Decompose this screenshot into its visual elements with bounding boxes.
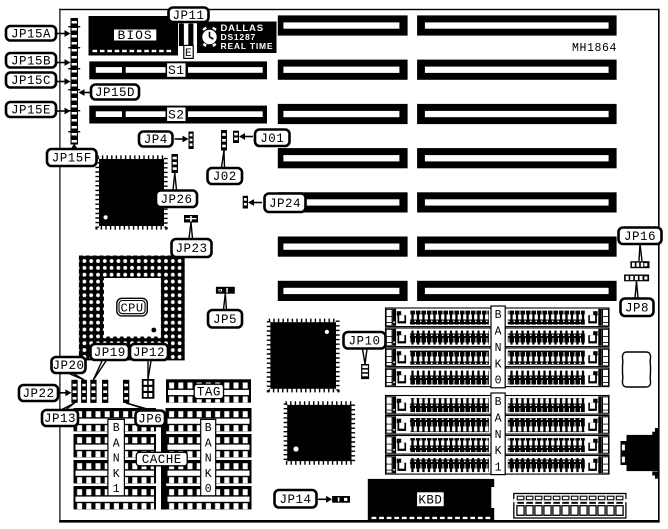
svg-text:S2: S2 — [168, 107, 185, 122]
svg-text:K: K — [495, 358, 502, 371]
svg-text:KBD: KBD — [418, 493, 442, 507]
svg-text:E: E — [185, 48, 192, 60]
svg-text:K: K — [495, 445, 502, 458]
svg-text:JP26: JP26 — [160, 193, 192, 207]
svg-text:J01: J01 — [260, 132, 284, 146]
svg-text:TAG: TAG — [197, 385, 221, 399]
svg-text:N: N — [205, 453, 212, 466]
svg-text:JP19: JP19 — [94, 346, 126, 360]
svg-text:B: B — [495, 396, 502, 409]
svg-text:JP15B: JP15B — [11, 54, 51, 68]
svg-text:A: A — [495, 326, 502, 339]
svg-text:JP6: JP6 — [138, 412, 162, 426]
svg-text:A: A — [205, 437, 212, 450]
svg-text:0: 0 — [495, 375, 502, 388]
svg-text:JP8: JP8 — [625, 301, 649, 315]
svg-text:1: 1 — [495, 461, 502, 474]
svg-text:B: B — [205, 422, 212, 435]
svg-text:B: B — [113, 422, 120, 435]
svg-text:JP15E: JP15E — [11, 104, 51, 118]
svg-text:JP4: JP4 — [144, 133, 168, 147]
svg-text:0: 0 — [205, 483, 212, 496]
svg-text:JP13: JP13 — [44, 412, 76, 426]
svg-text:JP12: JP12 — [133, 346, 165, 360]
svg-text:JP15D: JP15D — [95, 86, 135, 100]
svg-text:CACHE: CACHE — [142, 453, 182, 467]
svg-text:A: A — [113, 437, 120, 450]
svg-text:MH1864: MH1864 — [572, 42, 617, 55]
svg-text:J02: J02 — [213, 170, 237, 184]
svg-text:JP10: JP10 — [348, 334, 380, 348]
svg-text:JP11: JP11 — [172, 9, 204, 23]
svg-text:S1: S1 — [168, 63, 185, 78]
svg-text:JP5: JP5 — [213, 313, 237, 327]
svg-text:JP16: JP16 — [624, 230, 656, 244]
svg-text:JP15F: JP15F — [52, 152, 92, 166]
svg-text:JP20: JP20 — [52, 359, 84, 373]
svg-text:1: 1 — [113, 483, 120, 496]
svg-text:BIOS: BIOS — [118, 28, 153, 43]
svg-text:K: K — [113, 468, 120, 481]
svg-text:JP22: JP22 — [22, 387, 54, 401]
svg-text:JP14: JP14 — [279, 493, 311, 507]
svg-text:JP23: JP23 — [175, 242, 207, 256]
svg-text:A: A — [495, 413, 502, 426]
svg-text:K: K — [205, 468, 212, 481]
svg-text:N: N — [495, 429, 502, 442]
svg-text:CPU: CPU — [120, 301, 143, 315]
svg-text:JP15C: JP15C — [11, 74, 51, 88]
svg-text:B: B — [495, 309, 502, 322]
svg-text:JP15A: JP15A — [11, 27, 51, 41]
svg-text:N: N — [113, 453, 120, 466]
svg-text:JP24: JP24 — [269, 197, 301, 211]
svg-text:REAL TIME: REAL TIME — [221, 41, 274, 51]
svg-text:N: N — [495, 342, 502, 355]
